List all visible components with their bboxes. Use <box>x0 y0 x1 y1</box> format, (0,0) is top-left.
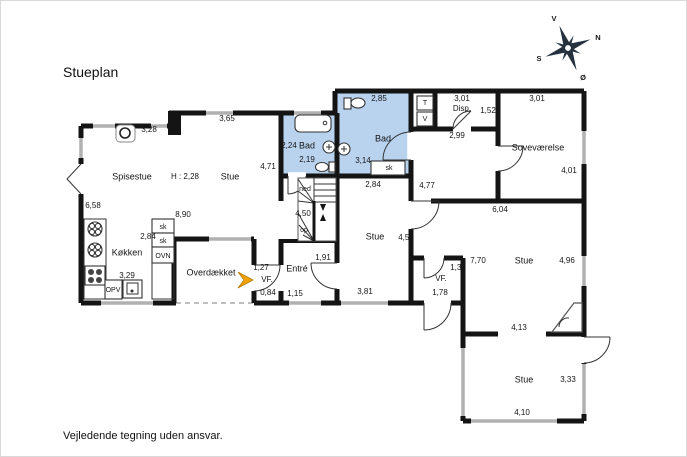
dim-1-91: 1,91 <box>315 253 331 262</box>
stairs-up-label: op <box>300 227 308 234</box>
vf-east-exterior-door <box>424 303 451 330</box>
compass-east-letter: Ø <box>580 73 586 82</box>
room-label-bad-west: Bad <box>299 140 315 150</box>
oven-label: OVN <box>155 253 170 260</box>
bathtub-icon <box>295 115 331 132</box>
floor-plan: SpisestueStueH : 2,28KøkkenBadBadSovevær… <box>1 1 687 457</box>
toilet-east-tank <box>344 98 351 109</box>
kitchen-sink-round-2 <box>88 243 102 257</box>
dim-1-78: 1,78 <box>432 288 448 297</box>
kitchen-sink-unit <box>123 280 142 298</box>
dim-6-58: 6,58 <box>85 201 101 210</box>
ceiling-height-note: H : 2,28 <box>171 172 200 181</box>
dim-1-30: 1,30 <box>450 263 466 272</box>
room-label-stue-center: Stue <box>366 231 385 241</box>
garden-door-east <box>584 337 610 363</box>
stairs-down-label: ned <box>299 186 311 193</box>
dim-2-99: 2,99 <box>449 131 465 140</box>
dim-4-71: 4,71 <box>260 162 276 171</box>
dim-4-50: 4,50 <box>295 209 311 218</box>
cooktop-icon <box>85 266 105 285</box>
dim-4-54: 4,54 <box>398 233 414 242</box>
dim-1-52: 1,52 <box>480 106 496 115</box>
room-label-entre: Entré <box>286 263 308 273</box>
dim-7-70: 7,70 <box>470 256 486 265</box>
dim-3-28: 3,28 <box>141 125 157 134</box>
dim-3-81: 3,81 <box>357 287 373 296</box>
room-label-koekken: Køkken <box>112 247 143 257</box>
dim-3-33: 3,33 <box>560 375 576 384</box>
room-label-sovevaerelse: Soveværelse <box>512 142 565 152</box>
dim-3-14: 3,14 <box>355 156 371 165</box>
kitchen-counter-east <box>152 263 174 299</box>
room-label-vf-west: VF. <box>261 275 273 284</box>
labels-layer: SpisestueStueH : 2,28KøkkenBadBadSovevær… <box>85 14 601 417</box>
dim-0-84: 0,84 <box>260 288 276 297</box>
dim-1-27: 1,27 <box>253 263 269 272</box>
toilet-west-icon <box>316 163 329 172</box>
dim-8-90: 8,90 <box>175 210 191 219</box>
fireplace-icon <box>552 303 582 332</box>
dim-2-85: 2,85 <box>371 94 387 103</box>
compass-north-letter: N <box>595 33 600 42</box>
dim-4-13: 4,13 <box>511 323 527 332</box>
toilet-west-tank <box>329 162 335 172</box>
dim-1-15: 1,15 <box>287 289 303 298</box>
compass-south-letter: S <box>536 54 541 63</box>
dim-2-84-bad: 2,84 <box>365 180 381 189</box>
dim-4-01: 4,01 <box>561 166 577 175</box>
hall-door <box>411 201 439 229</box>
room-label-stue-east: Stue <box>515 255 534 265</box>
dim-3-29: 3,29 <box>119 271 135 280</box>
dim-4-96: 4,96 <box>559 256 575 265</box>
room-label-stue-south: Stue <box>515 374 534 384</box>
room-label-spisestue: Spisestue <box>112 171 152 181</box>
room-label-stue-west: Stue <box>221 171 240 181</box>
dim-3-01-disp: 3,01 <box>454 94 470 103</box>
dim-3-65: 3,65 <box>219 114 235 123</box>
washer-label: V <box>423 116 428 123</box>
dim-2-24: 2,24 <box>281 141 297 150</box>
floorplan-page: Stueplan Vejledende tegning uden ansvar. <box>0 0 687 457</box>
compass-rose <box>537 17 599 79</box>
closet-label-2: sk <box>160 238 168 245</box>
closet-label-bad: sk <box>386 165 394 172</box>
wood-stove-icon <box>116 125 135 142</box>
dryer-label: T <box>423 100 428 107</box>
wall-step <box>168 111 181 135</box>
room-label-bad-east: Bad <box>375 133 391 143</box>
dishwasher-label: OPV <box>106 287 121 294</box>
room-label-disp: Disp. <box>453 104 471 113</box>
kitchen-sink-round-1 <box>88 222 102 236</box>
dim-4-10: 4,10 <box>514 408 530 417</box>
toilet-east-icon <box>351 98 365 108</box>
dim-2-84-koekken: 2,84 <box>140 232 156 241</box>
compass-west-letter: V <box>551 14 556 23</box>
room-label-overdaekket: Overdækket <box>186 267 236 277</box>
entre-living-door <box>311 263 337 289</box>
room-label-vf-east: VF. <box>435 274 447 283</box>
dim-2-19: 2,19 <box>299 155 315 164</box>
dim-4-77: 4,77 <box>419 181 435 190</box>
dim-3-01-sove: 3,01 <box>529 94 545 103</box>
dim-6-04: 6,04 <box>492 205 508 214</box>
closet-label-1: sk <box>160 224 168 231</box>
